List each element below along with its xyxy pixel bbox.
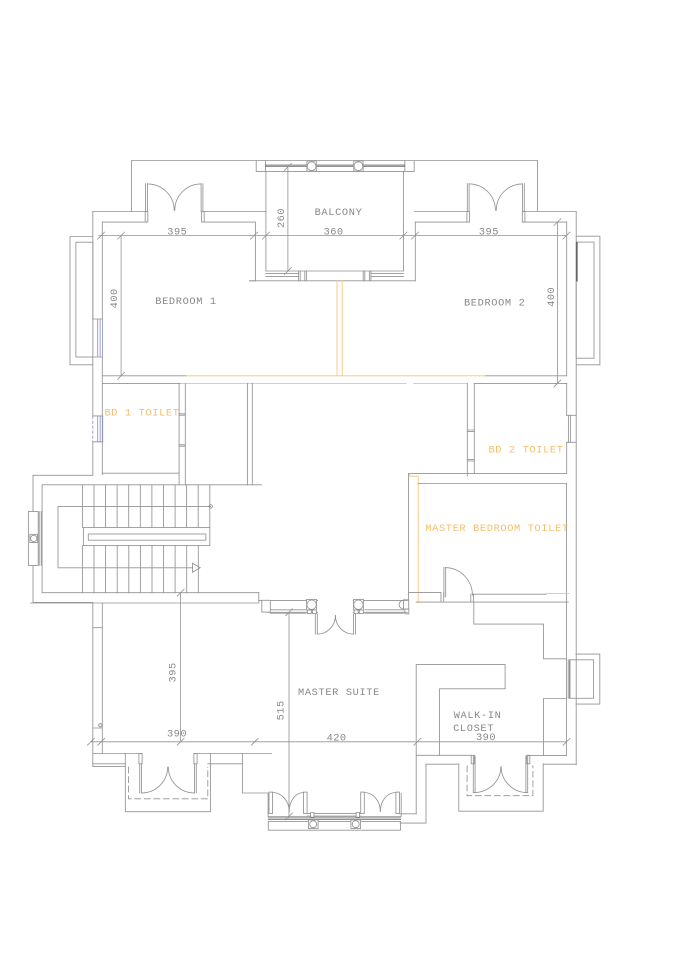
- svg-text:360: 360: [324, 227, 344, 239]
- svg-text:390: 390: [167, 729, 187, 741]
- svg-text:515: 515: [275, 700, 287, 720]
- svg-text:260: 260: [276, 208, 288, 228]
- svg-text:400: 400: [109, 288, 121, 308]
- svg-text:390: 390: [476, 732, 496, 744]
- svg-text:BD 1 TOILET: BD 1 TOILET: [104, 408, 179, 420]
- svg-text:BALCONY: BALCONY: [315, 207, 363, 219]
- svg-text:395: 395: [167, 227, 187, 239]
- svg-text:BD 2 TOILET: BD 2 TOILET: [488, 445, 563, 457]
- svg-text:BEDROOM 1: BEDROOM 1: [155, 296, 216, 308]
- svg-text:400: 400: [546, 287, 558, 307]
- svg-text:420: 420: [327, 733, 347, 745]
- svg-text:395: 395: [479, 227, 499, 239]
- svg-text:MASTER SUITE: MASTER SUITE: [298, 687, 380, 699]
- svg-text:WALK-IN: WALK-IN: [454, 710, 502, 722]
- svg-text:MASTER BEDROOM TOILET: MASTER BEDROOM TOILET: [425, 523, 568, 535]
- svg-text:395: 395: [168, 662, 180, 682]
- svg-text:BEDROOM 2: BEDROOM 2: [464, 298, 525, 310]
